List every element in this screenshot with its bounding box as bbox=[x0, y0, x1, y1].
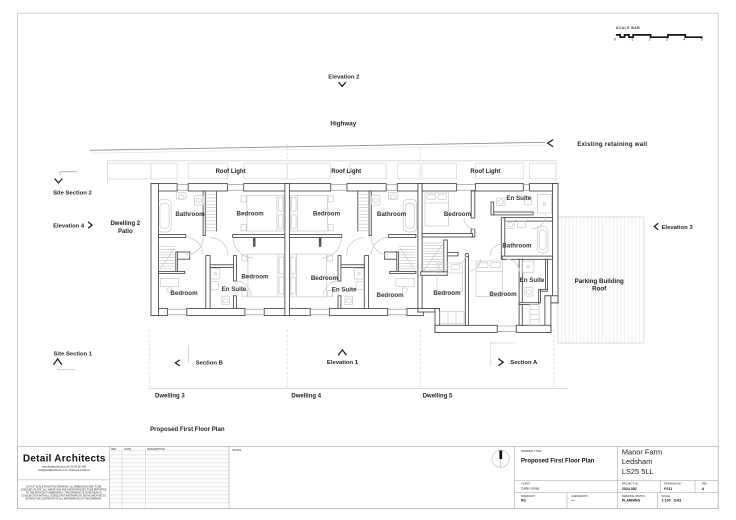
svg-text:DATE: DATE bbox=[124, 447, 131, 451]
svg-text:DRAWN BY: DRAWN BY bbox=[521, 494, 535, 498]
svg-text:REV: REV bbox=[702, 482, 708, 486]
svg-text:En Suite: En Suite bbox=[332, 286, 357, 293]
svg-text:Dwelling 4: Dwelling 4 bbox=[291, 394, 321, 400]
svg-text:En Suite: En Suite bbox=[506, 195, 531, 202]
svg-text:Roof Light: Roof Light bbox=[216, 169, 246, 175]
svg-text:DO NOT SCALE FROM THIS DRAWING: DO NOT SCALE FROM THIS DRAWING. ALL DIME… bbox=[26, 485, 101, 488]
svg-text:Proposed First Floor Plan: Proposed First Floor Plan bbox=[521, 458, 595, 464]
svg-text:En Suite: En Suite bbox=[520, 277, 545, 284]
svg-text:Roof Light: Roof Light bbox=[331, 169, 361, 175]
svg-text:REV: REV bbox=[111, 447, 117, 451]
svg-text:4: 4 bbox=[683, 37, 685, 41]
svg-text:Bathroom: Bathroom bbox=[502, 242, 532, 249]
svg-text:Section A: Section A bbox=[510, 360, 538, 366]
svg-text:Carter Jonas: Carter Jonas bbox=[521, 486, 540, 490]
svg-text:PROJECT NO: PROJECT NO bbox=[622, 482, 639, 486]
svg-text:Detail Architects: Detail Architects bbox=[23, 454, 106, 465]
svg-text:Bedroom: Bedroom bbox=[489, 291, 517, 298]
svg-text:hello@detailarchitects.co.uk: hello@detailarchitects.co.uk | Chartered… bbox=[38, 469, 90, 472]
svg-text:Elevation 2: Elevation 2 bbox=[328, 74, 360, 80]
svg-text:Bathroom: Bathroom bbox=[175, 211, 205, 218]
svg-text:Ledsham: Ledsham bbox=[622, 457, 652, 466]
svg-text:CHECKED ON SITE. ALL VARIATION: CHECKED ON SITE. ALL VARIATIONS AND DISC… bbox=[21, 488, 107, 491]
svg-text:Proposed First Floor Plan: Proposed First Floor Plan bbox=[150, 426, 225, 433]
svg-text:DRAWING NO: DRAWING NO bbox=[664, 482, 681, 486]
svg-text:Bedroom: Bedroom bbox=[313, 211, 341, 218]
svg-text:Bedroom: Bedroom bbox=[377, 292, 405, 299]
svg-text:CHECKED BY: CHECKED BY bbox=[571, 494, 588, 498]
svg-text:3: 3 bbox=[666, 37, 668, 41]
svg-text:Dwelling 3: Dwelling 3 bbox=[155, 394, 185, 400]
svg-text:2024-082: 2024-082 bbox=[622, 487, 637, 491]
svg-text:Dwelling 2: Dwelling 2 bbox=[110, 221, 140, 227]
svg-text:SCALE BAR: SCALE BAR bbox=[616, 26, 640, 30]
svg-text:Bedroom: Bedroom bbox=[170, 290, 198, 297]
svg-text:www.detailarchitects.co.uk |: www.detailarchitects.co.uk | 01234 567 8… bbox=[42, 465, 87, 468]
svg-text:Elevation 4: Elevation 4 bbox=[53, 224, 85, 230]
svg-text:Bedroom: Bedroom bbox=[237, 211, 265, 218]
svg-text:Patio: Patio bbox=[118, 229, 133, 235]
svg-text:—: — bbox=[571, 499, 575, 503]
svg-text:CLIENT: CLIENT bbox=[521, 482, 531, 486]
svg-text:En Suite: En Suite bbox=[222, 286, 247, 293]
svg-text:P211: P211 bbox=[664, 487, 672, 491]
svg-text:Dwelling 5: Dwelling 5 bbox=[423, 394, 453, 400]
svg-text:Manor Farm: Manor Farm bbox=[622, 447, 662, 456]
svg-text:Elevation 3: Elevation 3 bbox=[662, 225, 694, 231]
svg-text:0: 0 bbox=[614, 37, 616, 41]
svg-text:Highway: Highway bbox=[330, 121, 356, 128]
svg-text:Site Section 1: Site Section 1 bbox=[54, 352, 93, 358]
svg-text:Bedroom: Bedroom bbox=[444, 211, 472, 218]
svg-text:1: 1 bbox=[631, 37, 633, 41]
svg-text:Bathroom: Bathroom bbox=[377, 211, 407, 218]
svg-text:DESCRIPTION: DESCRIPTION bbox=[147, 447, 165, 451]
svg-text:1:100 @A3: 1:100 @A3 bbox=[662, 499, 682, 503]
svg-text:Bedroom: Bedroom bbox=[241, 273, 269, 280]
svg-text:Parking Building: Parking Building bbox=[575, 278, 624, 285]
svg-text:Bedroom: Bedroom bbox=[311, 275, 339, 282]
svg-text:DRAWING STATUS: DRAWING STATUS bbox=[622, 494, 645, 498]
svg-text:Existing retaining wall: Existing retaining wall bbox=[577, 141, 647, 148]
svg-text:DRAWING TITLE: DRAWING TITLE bbox=[521, 449, 541, 453]
svg-text:Section B: Section B bbox=[196, 361, 223, 367]
svg-text:Site Section 2: Site Section 2 bbox=[53, 190, 92, 196]
svg-text:NOTES: NOTES bbox=[232, 448, 241, 452]
svg-text:TO THE ARCHITECT IMMEDIATELY.: TO THE ARCHITECT IMMEDIATELY. THIS DRAWI… bbox=[26, 491, 102, 494]
svg-text:Roof Light: Roof Light bbox=[470, 169, 500, 175]
svg-text:5: 5 bbox=[701, 37, 703, 41]
svg-text:CONJUNCTION WITH ALL CONSULTAN: CONJUNCTION WITH ALL CONSULTANT INFORMAT… bbox=[22, 494, 107, 497]
svg-text:SCALE: SCALE bbox=[662, 494, 671, 498]
svg-text:PLANNING: PLANNING bbox=[622, 499, 641, 503]
svg-text:RETAINS THE COPYRIGHT OF ALL I: RETAINS THE COPYRIGHT OF ALL INFORMATION… bbox=[26, 497, 103, 500]
svg-text:Elevation 1: Elevation 1 bbox=[327, 360, 359, 366]
svg-text:2: 2 bbox=[649, 37, 651, 41]
svg-text:LS25 5LL: LS25 5LL bbox=[622, 467, 654, 476]
svg-text:RS: RS bbox=[521, 499, 527, 503]
svg-text:Roof: Roof bbox=[592, 286, 607, 293]
svg-text:Bedroom: Bedroom bbox=[433, 290, 461, 297]
